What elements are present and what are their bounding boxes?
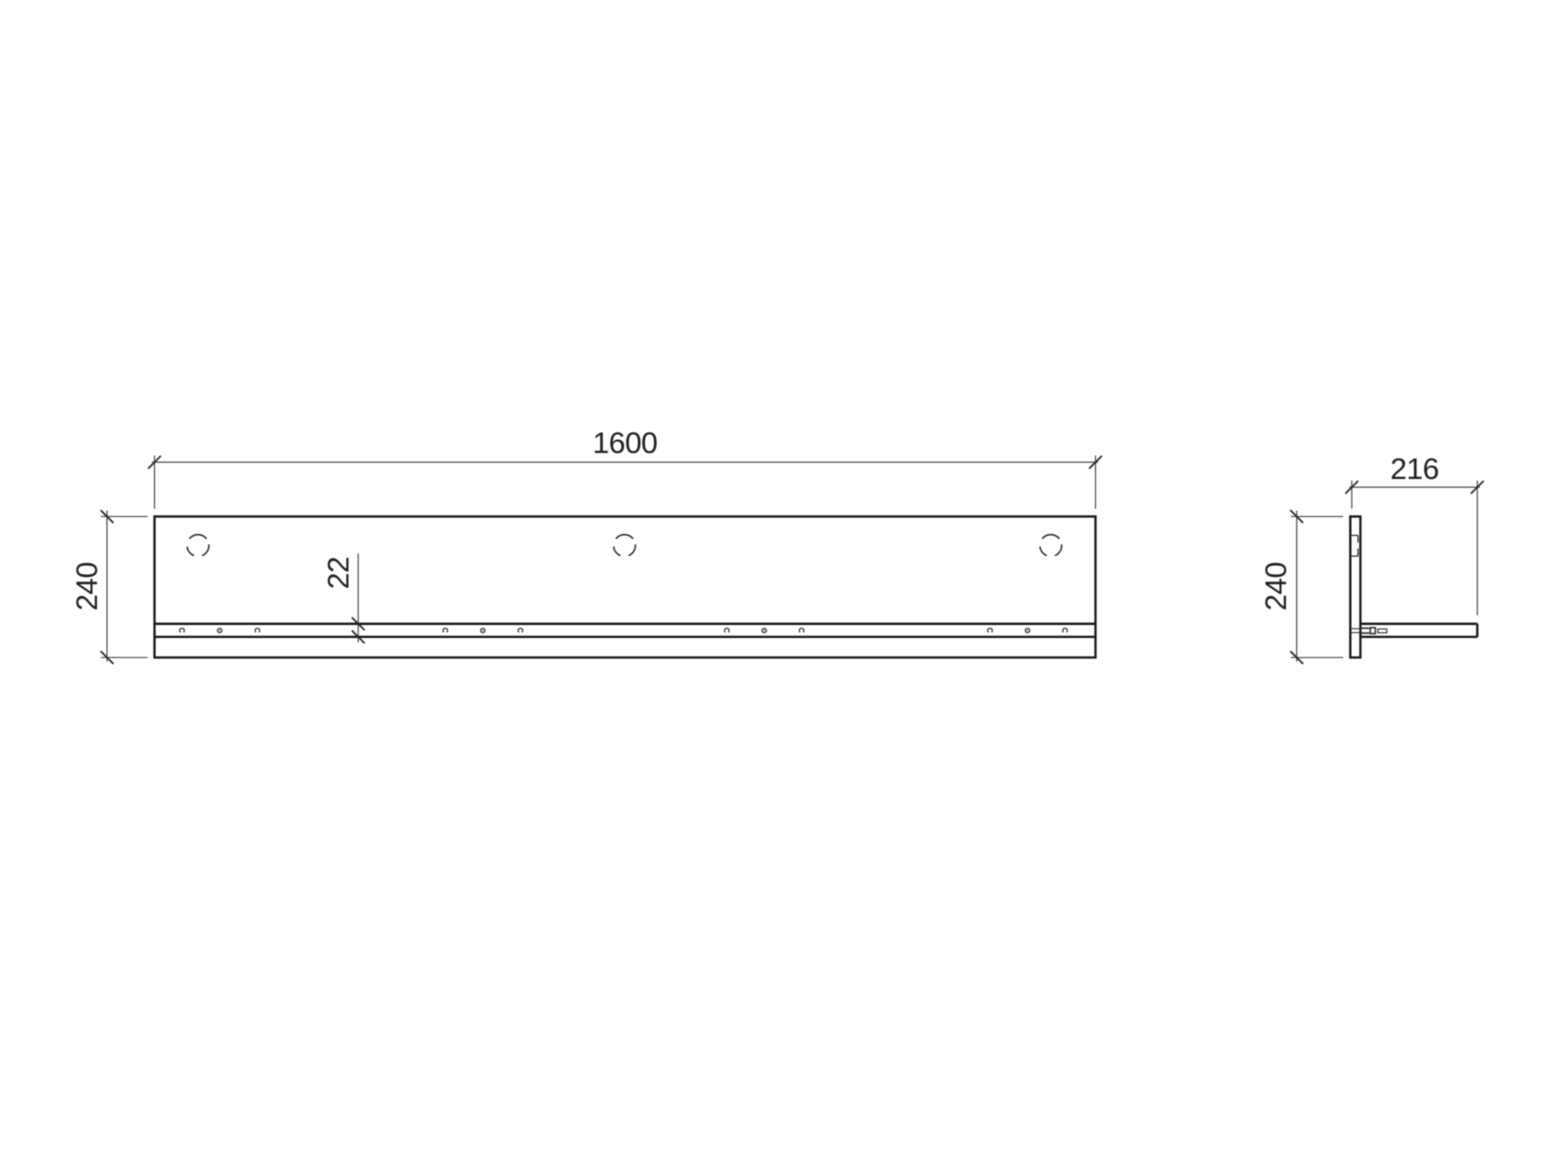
- svg-text:22: 22: [323, 557, 356, 589]
- svg-text:240: 240: [71, 562, 104, 611]
- svg-text:1600: 1600: [593, 427, 658, 460]
- svg-text:240: 240: [1260, 562, 1293, 611]
- svg-text:216: 216: [1390, 453, 1439, 486]
